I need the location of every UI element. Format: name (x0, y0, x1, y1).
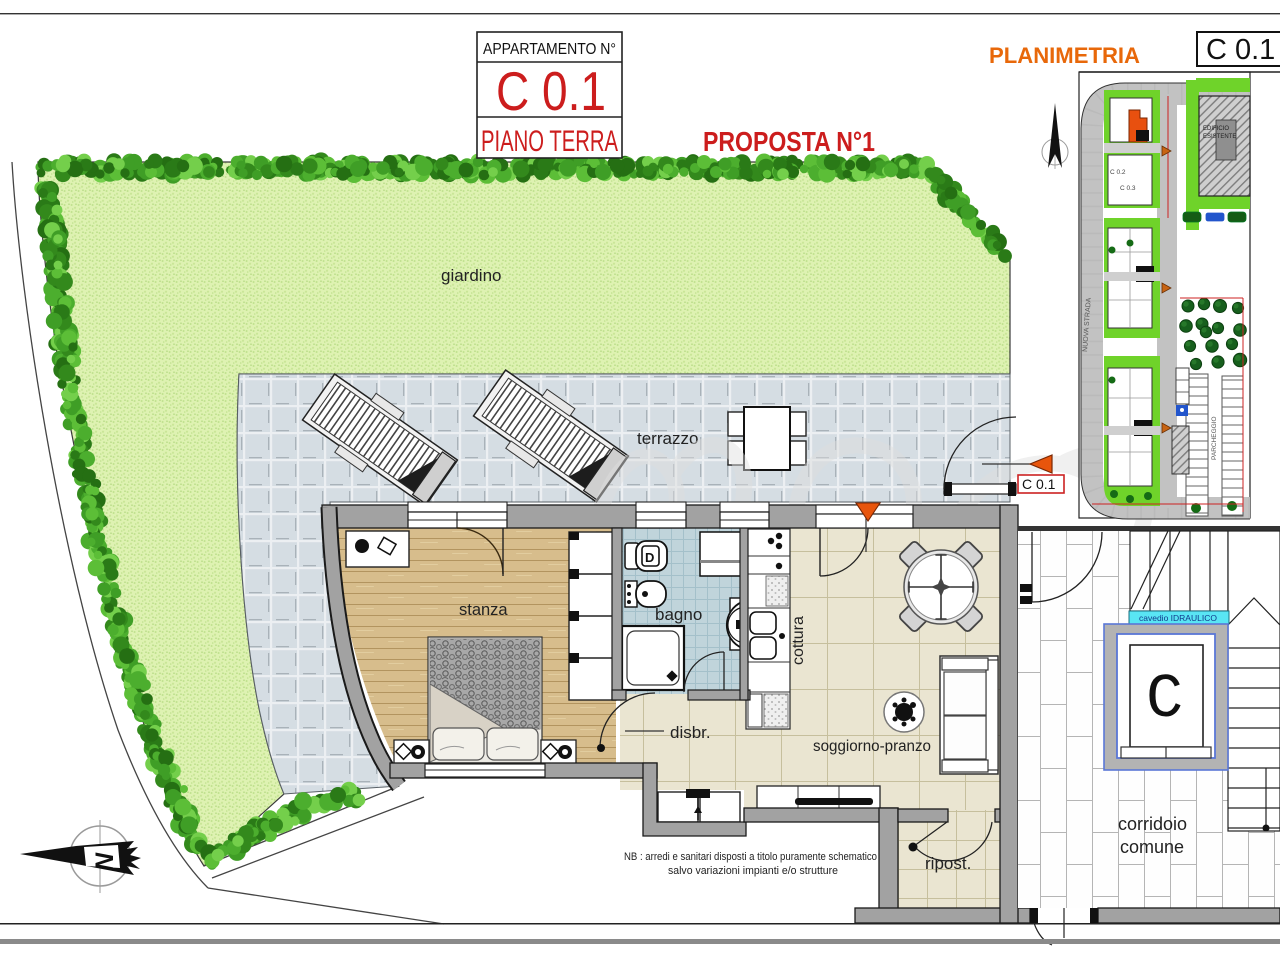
svg-text:PLANIMETRIA: PLANIMETRIA (989, 43, 1140, 68)
svg-text:C: C (1146, 664, 1183, 735)
svg-text:PROPOSTA N°1: PROPOSTA N°1 (703, 126, 875, 157)
svg-text:cavedio IDRAULICO: cavedio IDRAULICO (1139, 613, 1217, 623)
svg-text:C 0.3: C 0.3 (1120, 185, 1136, 192)
svg-text:PIANO TERRA: PIANO TERRA (481, 125, 618, 158)
svg-text:NB : arredi e sanitari dispost: NB : arredi e sanitari disposti a titolo… (624, 851, 877, 863)
svg-text:soggiorno-pranzo: soggiorno-pranzo (813, 738, 931, 755)
svg-text:salvo variazioni impianti e/o: salvo variazioni impianti e/o strutture (668, 865, 838, 877)
svg-text:C 0.1: C 0.1 (1022, 476, 1056, 492)
svg-text:cottura: cottura (790, 616, 807, 665)
svg-text:EDIFICIO: EDIFICIO (1203, 126, 1229, 132)
svg-text:bagno: bagno (655, 605, 702, 624)
svg-text:disbr.: disbr. (670, 723, 711, 742)
svg-text:C 0.2: C 0.2 (1110, 169, 1126, 176)
svg-text:ripost.: ripost. (925, 854, 971, 873)
svg-text:PARCHEGGIO: PARCHEGGIO (1211, 416, 1218, 460)
svg-text:giardino: giardino (441, 266, 502, 285)
svg-text:APPARTAMENTO N°: APPARTAMENTO N° (483, 41, 616, 58)
svg-text:corridoio: corridoio (1118, 814, 1187, 834)
svg-text:N: N (91, 852, 119, 871)
svg-text:C 0.1: C 0.1 (1206, 34, 1275, 66)
svg-text:C 0.1: C 0.1 (496, 60, 606, 122)
svg-text:D: D (645, 550, 654, 565)
svg-text:stanza: stanza (459, 601, 508, 619)
svg-text:comune: comune (1120, 837, 1184, 857)
svg-text:ESISTENTE: ESISTENTE (1203, 134, 1236, 140)
